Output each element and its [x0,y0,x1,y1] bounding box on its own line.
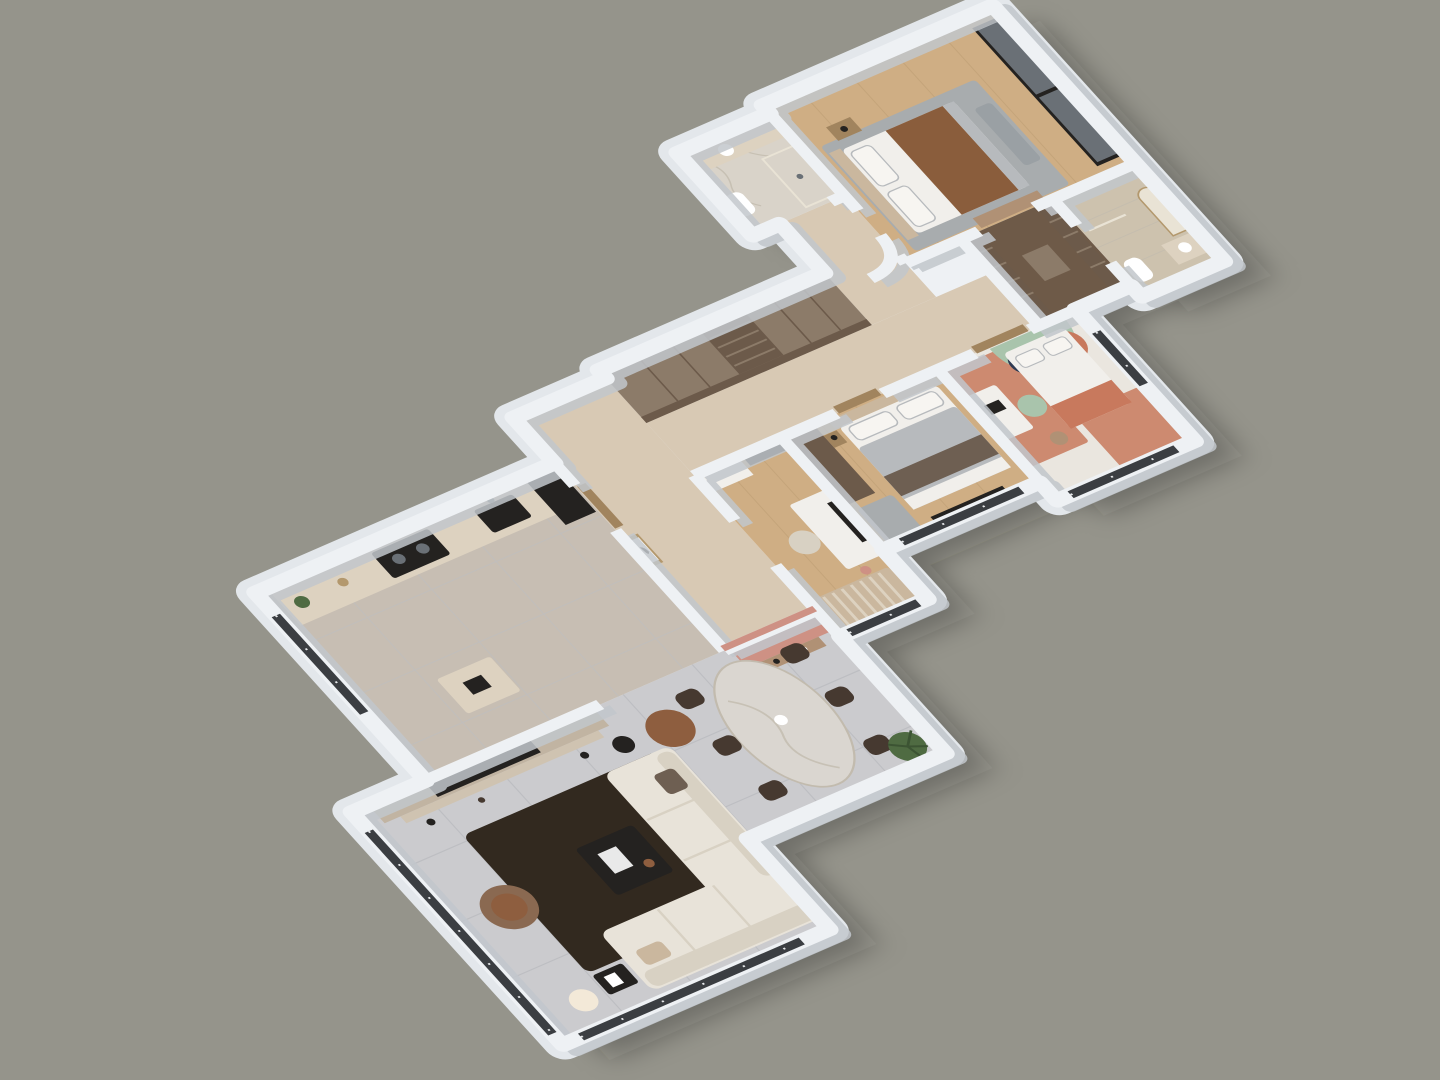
render-backdrop [0,0,1440,1080]
floorplan-render [0,0,1440,1080]
